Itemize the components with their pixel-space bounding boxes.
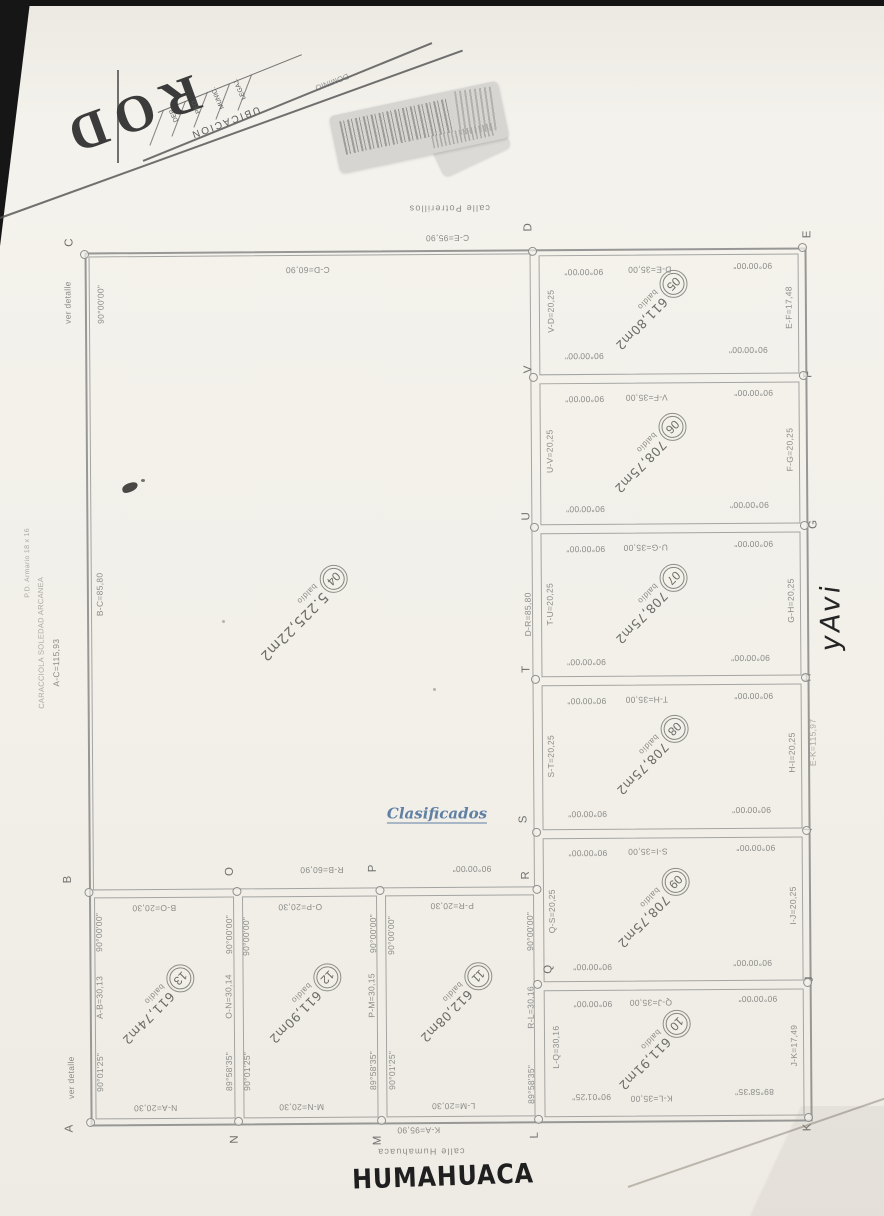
scanned-survey-plan: ROD UBICACION DEP. PED. MUNIC. LEGAJ. DO… bbox=[0, 0, 884, 1216]
dimension-label: B-C=85,80 bbox=[95, 573, 104, 617]
corner-marker bbox=[528, 247, 537, 256]
dimension-label: H-I=20,25 bbox=[788, 732, 797, 772]
corner-letter-E: E bbox=[801, 231, 813, 239]
corner-letter-D: D bbox=[522, 223, 534, 231]
dimension-label: Q-J=35,00 bbox=[629, 998, 672, 1007]
dimension-label: U-G=35,00 bbox=[623, 543, 668, 552]
dimension-label: 90°00'00" bbox=[734, 691, 773, 700]
dimension-label: ver detalle bbox=[63, 281, 72, 324]
dimension-label: ver detalle bbox=[67, 1056, 76, 1099]
dimension-label: B-O=20,30 bbox=[132, 904, 176, 913]
dimension-label: 90°00'00" bbox=[568, 810, 607, 819]
dimension-label: 90°00'00" bbox=[734, 388, 773, 397]
dimension-label: calle Humahuaca bbox=[377, 1146, 465, 1156]
dimension-label: E-F=17,48 bbox=[785, 286, 794, 329]
dimension-label: O-P=20,30 bbox=[278, 903, 322, 912]
corner-letter-P: P bbox=[367, 865, 379, 873]
dimension-label: 90°00'00" bbox=[573, 1000, 612, 1009]
dimension-label: 90°00'00" bbox=[567, 658, 606, 667]
dimension-label: F-G=20,25 bbox=[786, 428, 795, 472]
dimension-label: 90°01'25" bbox=[572, 1093, 611, 1102]
dimension-label: 90°00'00" bbox=[568, 849, 607, 858]
dimension-label: S-T=20,25 bbox=[547, 735, 556, 778]
corner-marker bbox=[234, 1117, 243, 1126]
dimension-label: 90°00'00" bbox=[564, 268, 603, 277]
dimension-label: 90°01'25" bbox=[243, 1052, 252, 1091]
corner-marker bbox=[232, 887, 241, 896]
dimension-label: 90°00'00" bbox=[733, 261, 772, 270]
dimension-label: 90°00'00" bbox=[565, 395, 604, 404]
dimension-label: D-E=35,00 bbox=[628, 265, 672, 274]
dimension-label: P-R=20,30 bbox=[430, 902, 474, 911]
dimension-label: A-C=115,93 bbox=[52, 639, 61, 687]
dimension-label: calle Potrerillos bbox=[408, 203, 489, 213]
corner-marker bbox=[802, 826, 811, 835]
handwritten-humahuaca: HUMAHUACA bbox=[352, 1158, 535, 1195]
dimension-label: K-A=95,90 bbox=[397, 1126, 440, 1135]
dimension-label: V-F=35,00 bbox=[625, 393, 667, 402]
dimension-label: CARACCIOLA SOLEDAD ARCANEA bbox=[37, 577, 45, 709]
corner-letter-S: S bbox=[517, 816, 529, 824]
dimension-label: L-Q=30,16 bbox=[552, 1026, 561, 1069]
corner-letter-A: A bbox=[64, 1125, 76, 1133]
dimension-label: M-N=20,30 bbox=[279, 1103, 324, 1112]
dimension-label: 90°00'00" bbox=[730, 500, 769, 509]
dimension-label: C-E=95,90 bbox=[426, 234, 470, 243]
dimension-label: E-K=115,97 bbox=[809, 719, 818, 767]
dimension-label: L-M=20,30 bbox=[432, 1102, 476, 1111]
corner-marker bbox=[532, 828, 541, 837]
dimension-label: 90°00'00" bbox=[452, 864, 491, 873]
dimension-label: 90°00'00" bbox=[736, 843, 775, 852]
dimension-label: 90°00'00" bbox=[566, 545, 605, 554]
dimension-label: 89°58'35" bbox=[735, 1087, 774, 1096]
corner-marker bbox=[80, 250, 89, 259]
corner-marker bbox=[375, 886, 384, 895]
corner-marker bbox=[86, 1118, 95, 1127]
corner-letter-K: K bbox=[802, 1124, 814, 1132]
dimension-label: 90°00'00" bbox=[734, 539, 773, 548]
corner-letter-O: O bbox=[224, 867, 236, 876]
dimension-label: 90°01'25" bbox=[388, 1051, 397, 1090]
corner-marker bbox=[800, 521, 809, 530]
dimension-label: 90°00'00" bbox=[729, 345, 768, 354]
corner-marker bbox=[799, 371, 808, 380]
dimension-label: 90°00'00" bbox=[225, 915, 234, 954]
corner-letter-L: L bbox=[529, 1132, 541, 1138]
dimension-label: 90°00'00" bbox=[387, 916, 396, 955]
corner-marker bbox=[801, 673, 810, 682]
corner-marker bbox=[803, 978, 812, 987]
dimension-label: T-H=35,00 bbox=[625, 695, 668, 704]
corner-letter-N: N bbox=[229, 1135, 241, 1143]
dimension-label: P-M=30,15 bbox=[367, 973, 376, 1018]
corner-marker bbox=[529, 373, 538, 382]
dimension-label: R-B=60,90 bbox=[300, 865, 344, 874]
corner-letter-U: U bbox=[520, 512, 532, 520]
dimension-label: D-R=85,80 bbox=[524, 592, 533, 636]
dimension-label: 90°00'00" bbox=[733, 958, 772, 967]
dimension-label: I-J=20,25 bbox=[789, 886, 798, 924]
lot-04-boundary bbox=[89, 253, 535, 890]
dimension-label: P.D. Armario 18 x 16 bbox=[24, 528, 31, 598]
dimension-label: K-L=35,00 bbox=[630, 1094, 672, 1103]
dimension-label: N-A=20,30 bbox=[134, 1104, 178, 1113]
dimension-label: T-U=20,25 bbox=[546, 583, 555, 626]
dimension-label: S-I=35,00 bbox=[628, 847, 668, 856]
dimension-label: Q-S=20,25 bbox=[548, 889, 557, 933]
plan-drawing: 04 5.225,22m2 baldío 05 611,80m2 baldío … bbox=[0, 0, 884, 1216]
corner-marker bbox=[84, 888, 93, 897]
dimension-label: 89°58'35" bbox=[527, 1065, 536, 1104]
dimension-label: 90°00'00" bbox=[732, 805, 771, 814]
corner-marker bbox=[530, 523, 539, 532]
dimension-label: 90°00'00" bbox=[96, 285, 105, 324]
dimension-label: 90°00'00" bbox=[565, 352, 604, 361]
dimension-label: 90°00'00" bbox=[731, 653, 770, 662]
dimension-label: 90°00'00" bbox=[95, 913, 104, 952]
corner-marker bbox=[804, 1113, 813, 1122]
corner-marker bbox=[798, 243, 807, 252]
dimension-label: 90°00'00" bbox=[242, 917, 251, 956]
dimension-label: 90°00'00" bbox=[566, 505, 605, 514]
dimension-label: 89°58'35" bbox=[225, 1052, 234, 1091]
dimension-label: 90°00'00" bbox=[567, 697, 606, 706]
corner-letter-B: B bbox=[62, 876, 74, 884]
corner-marker bbox=[533, 980, 542, 989]
dimension-label: 90°00'00" bbox=[573, 963, 612, 972]
corner-marker bbox=[534, 1115, 543, 1124]
dimension-label: J-K=17,49 bbox=[790, 1025, 799, 1067]
dimension-label: 89°58'35" bbox=[369, 1051, 378, 1090]
dimension-label: A-B=30,13 bbox=[95, 976, 104, 1019]
corner-marker bbox=[532, 885, 541, 894]
corner-marker bbox=[531, 675, 540, 684]
corner-letter-T: T bbox=[520, 666, 532, 673]
dimension-label: 90°00'00" bbox=[369, 914, 378, 953]
corner-letter-C: C bbox=[63, 238, 75, 246]
dimension-label: 90°01'25" bbox=[96, 1053, 105, 1092]
corner-letter-G: G bbox=[807, 520, 819, 529]
handwritten-yavi: yAvi bbox=[816, 581, 847, 654]
dimension-label: G-H=20,25 bbox=[787, 578, 796, 623]
dimension-label: U-V=20,25 bbox=[546, 429, 555, 473]
dimension-label: 90°00'00" bbox=[526, 912, 535, 951]
corner-marker bbox=[377, 1116, 386, 1125]
dimension-label: 90°00'00" bbox=[738, 994, 777, 1003]
dimension-label: O-N=30,14 bbox=[224, 974, 233, 1019]
dimension-label: R-L=30,16 bbox=[526, 986, 535, 1029]
corner-letter-Q: Q bbox=[542, 965, 554, 974]
dimension-label: C-D=60,90 bbox=[286, 266, 330, 275]
corner-letter-M: M bbox=[372, 1136, 384, 1146]
corner-letter-R: R bbox=[520, 871, 532, 879]
clasificados-watermark: Clasificados bbox=[387, 805, 487, 824]
dimension-label: V-D=20,25 bbox=[547, 290, 556, 333]
